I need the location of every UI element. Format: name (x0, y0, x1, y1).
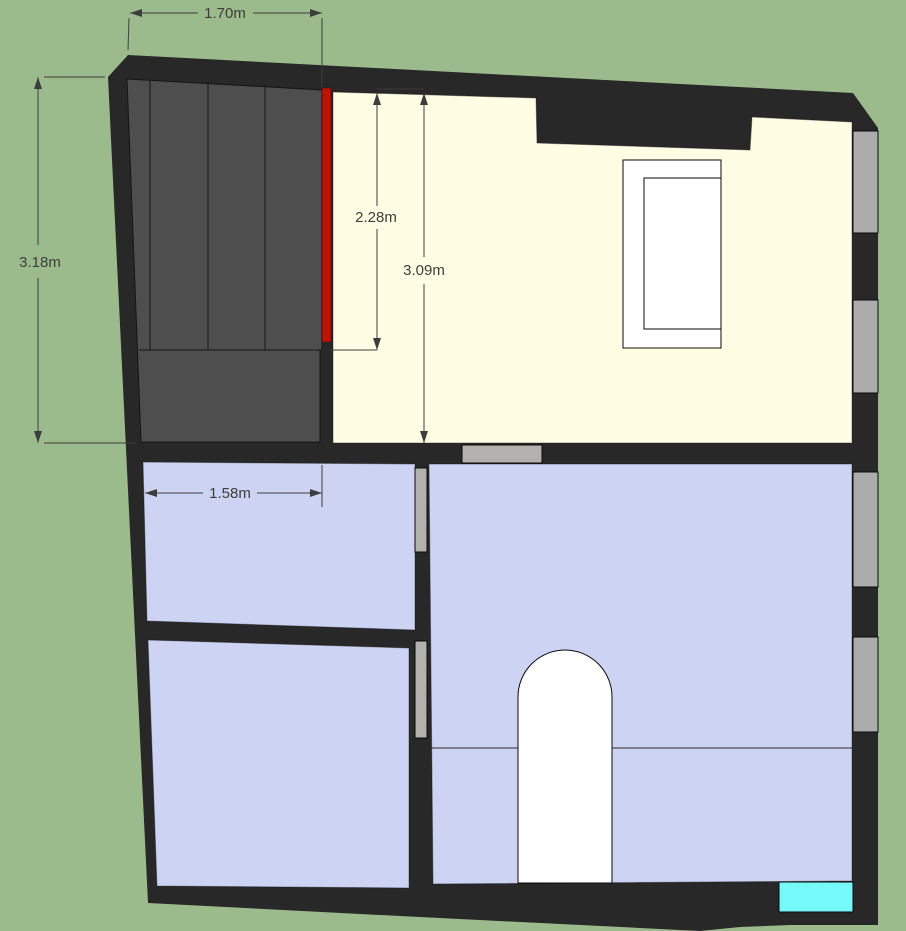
cyan-fixture (779, 882, 853, 912)
stair-floor (127, 79, 322, 442)
door-opening-middle-wall (462, 445, 542, 463)
staircase (127, 79, 331, 442)
lower-room-right-floor (429, 464, 852, 884)
dim-label: 3.18m (19, 254, 61, 271)
arched-opening (518, 650, 612, 883)
dim-label: 1.70m (204, 5, 246, 22)
lower-room-upper-left-floor (143, 462, 415, 630)
door-opening-vertical-wall-upper (415, 468, 427, 552)
dim-label: 1.58m (209, 485, 251, 502)
lower-room-bottom-left-floor (148, 640, 409, 888)
dim-label: 3.09m (403, 262, 445, 279)
window-2 (853, 300, 878, 393)
window-1 (853, 131, 878, 233)
red-highlight-edge (322, 88, 331, 342)
object-inner-rect (644, 178, 721, 329)
window-4 (853, 637, 878, 732)
dim-label: 2.28m (355, 209, 397, 226)
door-opening-vertical-wall-lower (415, 641, 427, 738)
window-3 (853, 472, 878, 587)
model-viewport[interactable]: 1.70m 3.18m 2.28m 3.09m 1.58m (0, 0, 906, 931)
lower-room-right (429, 464, 853, 912)
upper-room-object (623, 160, 721, 348)
